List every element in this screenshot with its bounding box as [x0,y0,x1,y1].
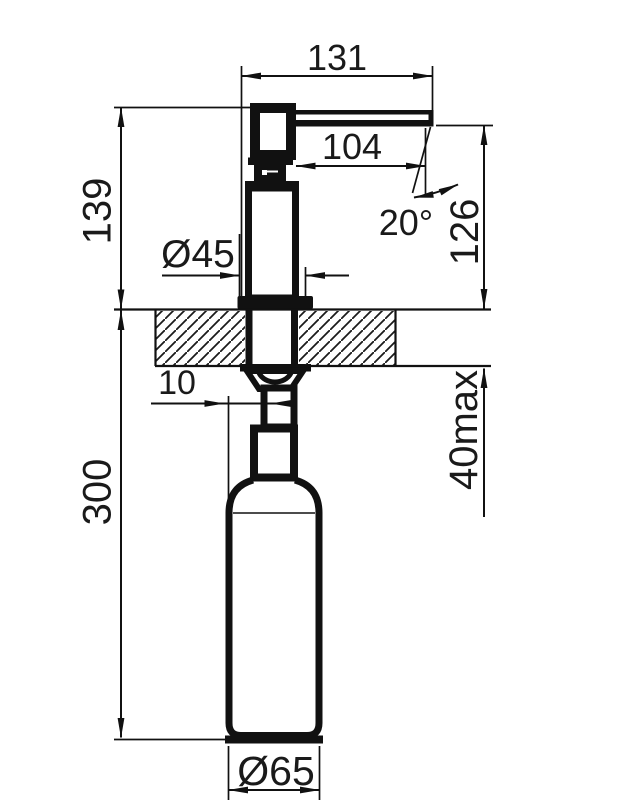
shank-tube [249,188,296,298]
dim-label-10: 10 [158,364,196,402]
dimension-under-counter-depth: 300 [76,311,230,740]
dim-label-139: 139 [76,178,120,245]
neck-tube [264,388,294,427]
dimension-height-above-counter: 139 [76,108,254,310]
dim-label-d45: Ø45 [161,233,235,276]
dim-label-d65: Ø65 [237,748,315,794]
dimension-bottle-diameter: Ø65 [229,746,320,800]
countertop-hatch-right [299,311,395,365]
countertop [114,310,491,367]
pump-head [255,108,291,155]
spout [292,110,434,127]
bottle-outline [229,480,319,736]
dimension-spout-outlet-height: 126 [436,126,493,309]
angle-arc [414,185,458,198]
dimension-spout-reach: 104 [296,126,426,167]
soap-dispenser-drawing: 131 104 20° 139 Ø45 [0,0,622,810]
bottle-cap [254,429,294,478]
deck-flange [238,296,314,309]
dimension-counter-thickness-max: 40max [442,369,486,518]
dim-label-40max: 40max [442,370,486,490]
dim-label-104: 104 [322,126,382,167]
angle-slanted-line [413,127,431,193]
dim-label-126: 126 [443,199,487,266]
dim-label-131: 131 [307,37,367,78]
dim-label-20deg: 20° [379,202,433,243]
dim-label-300: 300 [76,459,120,526]
technical-drawing-page: 131 104 20° 139 Ø45 [0,0,622,810]
countertop-hatch-left [156,311,245,365]
pump-ring-tick-bottom [267,173,280,176]
pump-ring-tick-top [267,168,280,171]
